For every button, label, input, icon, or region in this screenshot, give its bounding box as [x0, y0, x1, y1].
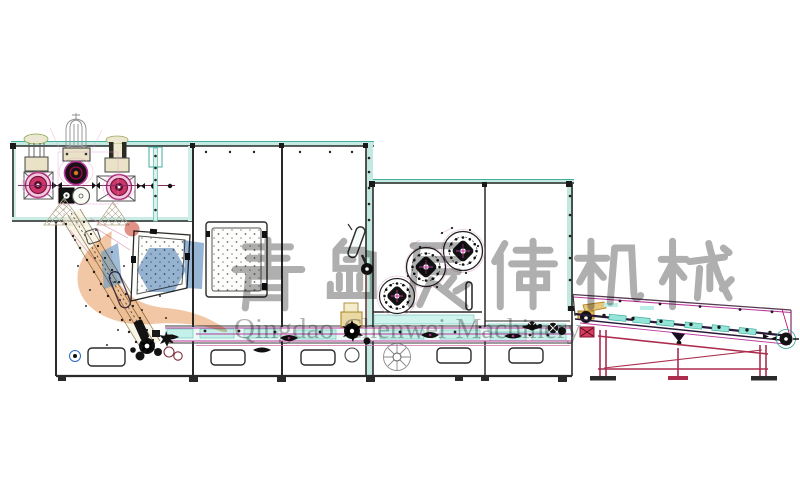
svg-text:Qingdao Chenwei Machinery: Qingdao Chenwei Machinery — [234, 313, 582, 345]
